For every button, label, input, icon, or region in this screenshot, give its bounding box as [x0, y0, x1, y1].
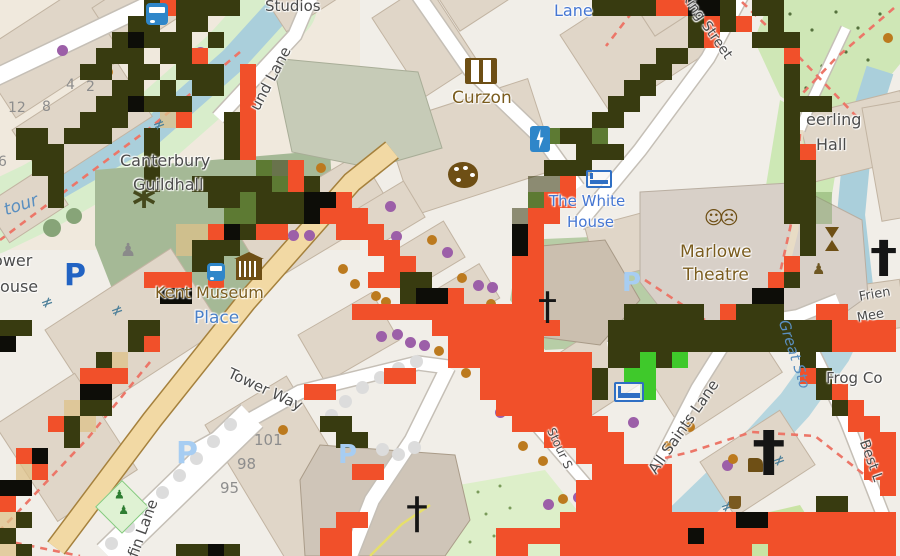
map-viewport[interactable]: PPPP☺☹♟♟*††††≠≠≠≠≠♟♟ Studiosund LaneLane…: [0, 0, 900, 556]
lawn-tree: [43, 219, 61, 237]
lawn-tree: [66, 208, 82, 224]
base-map: [0, 0, 900, 556]
studios-building: [272, 58, 442, 168]
